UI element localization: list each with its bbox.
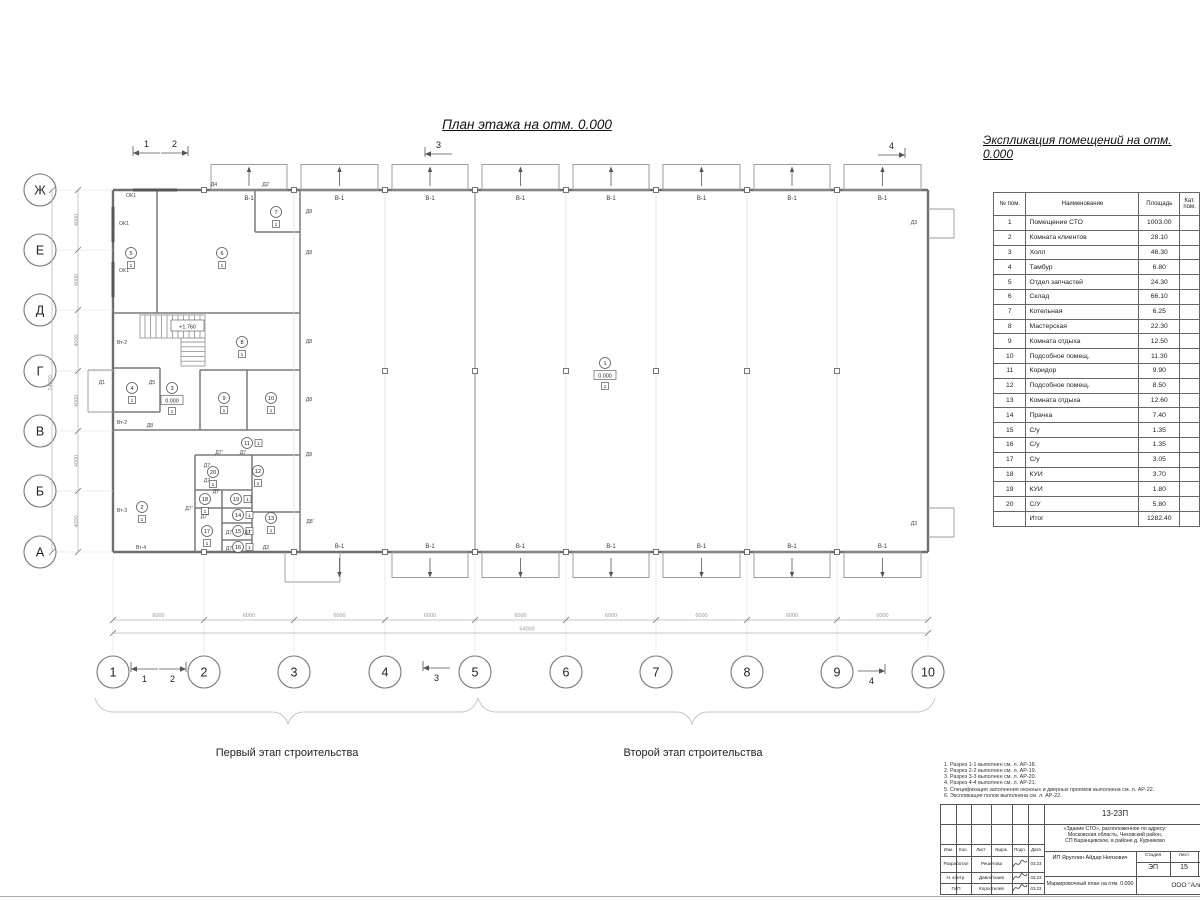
col-header-area: Площадь bbox=[1139, 193, 1180, 216]
gate-label: В-1 bbox=[787, 544, 797, 550]
bay-dimension: 6000 bbox=[424, 613, 436, 619]
section-label: 3 bbox=[436, 140, 441, 150]
bay-dimension: 6000 bbox=[695, 613, 707, 619]
address-line3: СП Баранцевское, в районе д. Курниково bbox=[1044, 838, 1186, 844]
gate-label: В-1 bbox=[335, 544, 345, 550]
table-cell bbox=[1180, 497, 1200, 512]
gate-label: В-1 bbox=[787, 196, 797, 202]
gate-label: В-1 bbox=[516, 196, 526, 202]
section-arrowhead bbox=[899, 152, 905, 158]
table-cell: 13 bbox=[994, 393, 1026, 408]
gate-label: В-1 bbox=[606, 544, 616, 550]
table-cell: Подсобное помещ. bbox=[1026, 349, 1139, 364]
door-label: Д7 bbox=[240, 450, 247, 456]
table-header-row: № пом. Наименование Площадь Кат. пом. bbox=[994, 193, 1200, 216]
table-row: 9Комната отдыха12.50 bbox=[994, 334, 1200, 349]
table-cell: 20 bbox=[994, 497, 1026, 512]
floor-type-number: 1 bbox=[212, 482, 215, 488]
column-mark bbox=[835, 550, 840, 555]
project-address: «Здание СТО», расположенное по адресу: М… bbox=[1044, 826, 1186, 845]
gate-label: В-1 bbox=[697, 544, 707, 550]
section-arrowhead bbox=[180, 666, 186, 672]
column-mark bbox=[202, 550, 207, 555]
header-ndok: №док. bbox=[991, 847, 1012, 852]
bay-dimension: 6000 bbox=[605, 613, 617, 619]
bay-dimension: 6000 bbox=[152, 613, 164, 619]
role-gip: ГИП bbox=[941, 886, 971, 892]
section-label: 2 bbox=[172, 139, 177, 149]
name-developer: Решетова bbox=[971, 861, 1012, 867]
table-cell: 24.30 bbox=[1139, 275, 1180, 290]
window-marks bbox=[113, 190, 177, 297]
room-level: 0.000 bbox=[165, 399, 179, 405]
table-cell bbox=[1180, 245, 1200, 260]
room-number: 10 bbox=[268, 396, 274, 402]
gate-label: В-1 bbox=[244, 196, 254, 202]
row-dimension: 4000 bbox=[74, 334, 80, 346]
signature-developer bbox=[1012, 857, 1028, 870]
table-row: 12Подсобное помещ.8.50 bbox=[994, 378, 1200, 393]
room-number: 3 bbox=[170, 386, 173, 392]
table-row: 20С/У5.80 bbox=[994, 497, 1200, 512]
table-cell: 1.35 bbox=[1139, 423, 1180, 438]
col-axis-label: 4 bbox=[382, 666, 389, 680]
col-header-name: Наименование bbox=[1026, 193, 1139, 216]
table-cell: 28.10 bbox=[1139, 230, 1180, 245]
gate-arrowhead bbox=[790, 167, 794, 173]
door-label: Д4 bbox=[211, 182, 218, 188]
gate-arrowhead bbox=[337, 167, 341, 173]
explication-title: Экспликация помещений на отм. 0.000 bbox=[983, 133, 1195, 161]
porches bbox=[88, 209, 954, 582]
gate-arrowhead bbox=[428, 167, 432, 173]
door-label: Д7 bbox=[226, 546, 233, 552]
stair-level-label: +1.760 bbox=[179, 325, 196, 331]
row-axis-label: Г bbox=[37, 365, 44, 379]
table-cell: С/у bbox=[1026, 423, 1139, 438]
door-label: Д7 bbox=[213, 489, 220, 495]
column-mark bbox=[383, 550, 388, 555]
gate-label: В-1 bbox=[335, 196, 345, 202]
table-row: 4Тамбур6.80 bbox=[994, 260, 1200, 275]
door-label: Д7 bbox=[204, 478, 211, 484]
table-cell: Комната отдыха bbox=[1026, 334, 1139, 349]
room-number: 20 bbox=[210, 470, 216, 476]
room-number: 7 bbox=[274, 210, 277, 216]
room-level: 0.000 bbox=[598, 374, 612, 380]
stage1-brace bbox=[95, 698, 478, 724]
column-mark bbox=[564, 369, 569, 374]
gate-arrowhead bbox=[609, 167, 613, 173]
table-cell: 15 bbox=[994, 423, 1026, 438]
floor-type-number: 1 bbox=[171, 409, 174, 415]
row-dimension: 4000 bbox=[74, 455, 80, 467]
gate-label: В-1 bbox=[878, 544, 888, 550]
door-label: Д7' bbox=[185, 506, 192, 512]
section-label: 4 bbox=[889, 141, 894, 151]
table-cell: 11.30 bbox=[1139, 349, 1180, 364]
table-cell bbox=[994, 511, 1026, 526]
table-cell: С/У bbox=[1026, 497, 1139, 512]
stage-header: Стадия bbox=[1136, 853, 1170, 859]
floor-type-number: 1 bbox=[246, 497, 249, 503]
total-width-dimension: 54000 bbox=[519, 627, 534, 633]
window-label: ОК1 bbox=[126, 193, 136, 199]
table-cell bbox=[1180, 452, 1200, 467]
drawing-name: Маркировочный план на отм. 0.000 bbox=[1044, 881, 1136, 887]
table-cell: 19 bbox=[994, 482, 1026, 497]
vent-label: Вт-2 bbox=[117, 420, 127, 426]
table-cell: 17 bbox=[994, 452, 1026, 467]
table-row: 5Отдел запчастей24.30 bbox=[994, 275, 1200, 290]
door-label: Д7' bbox=[215, 450, 222, 456]
column-mark bbox=[383, 188, 388, 193]
title-block: 13-23П «Здание СТО», расположенное по ад… bbox=[940, 804, 1200, 895]
header-list: Лист bbox=[971, 847, 991, 852]
stage-value: ЭП bbox=[1136, 864, 1170, 872]
table-cell: 3.05 bbox=[1139, 452, 1180, 467]
column-mark bbox=[383, 369, 388, 374]
date-developer: 03.23 bbox=[1028, 861, 1044, 866]
gate-arrowhead bbox=[337, 572, 341, 578]
table-row: 19КУИ1.80 bbox=[994, 482, 1200, 497]
floor-type-number: 1 bbox=[248, 545, 251, 551]
door-label: Д5 bbox=[149, 380, 156, 386]
column-mark bbox=[473, 188, 478, 193]
table-row: 14Прачка7.40 bbox=[994, 408, 1200, 423]
door-label: Д2 bbox=[263, 545, 270, 551]
floor-type-number: 1 bbox=[141, 517, 144, 523]
door-label: Д8 bbox=[147, 423, 154, 429]
gate-arrowhead bbox=[880, 572, 884, 578]
table-row: 6Склад66.10 bbox=[994, 289, 1200, 304]
gate-label: В-1 bbox=[516, 544, 526, 550]
row-axis-label: А bbox=[36, 546, 45, 560]
vent-label: Вт-3 bbox=[117, 508, 127, 514]
table-cell: 22.30 bbox=[1139, 319, 1180, 334]
total-height-dimension: 24000 bbox=[48, 375, 54, 390]
room-number: 18 bbox=[202, 497, 208, 503]
row-dimension: 4000 bbox=[74, 214, 80, 226]
column-mark bbox=[564, 188, 569, 193]
gate-arrowhead bbox=[609, 572, 613, 578]
table-cell: Прачка bbox=[1026, 408, 1139, 423]
table-row: 15С/у1.35 bbox=[994, 423, 1200, 438]
table-row: 2Комната клиентов28.10 bbox=[994, 230, 1200, 245]
section-label: 1 bbox=[144, 139, 149, 149]
stage2-brace bbox=[478, 698, 935, 724]
plan-title: План этажа на отм. 0.000 bbox=[327, 117, 727, 132]
gate-arrowhead bbox=[699, 167, 703, 173]
floor-type-number: 1 bbox=[130, 263, 133, 269]
section-arrowhead bbox=[131, 666, 137, 672]
signature-gip bbox=[1012, 882, 1028, 894]
date-gip: 03.23 bbox=[1028, 886, 1044, 891]
door-label: Д7 bbox=[204, 463, 211, 469]
table-cell: 12.50 bbox=[1139, 334, 1180, 349]
name-ncontrol: Давлетхаев bbox=[971, 875, 1012, 881]
room-number: 12 bbox=[255, 469, 261, 475]
role-developer: Разработал bbox=[941, 861, 971, 867]
table-cell: 6.25 bbox=[1139, 304, 1180, 319]
sheet-frame-line bbox=[0, 896, 1200, 897]
window-label: ОК1 bbox=[119, 268, 129, 274]
table-cell bbox=[1180, 511, 1200, 526]
gate-label: В-1 bbox=[878, 196, 888, 202]
floor-type-number: 1 bbox=[270, 528, 273, 534]
section-arrowhead bbox=[879, 668, 885, 674]
row-axis-label: Е bbox=[36, 244, 44, 258]
table-cell: 16 bbox=[994, 437, 1026, 452]
column-mark bbox=[745, 369, 750, 374]
column-mark bbox=[654, 550, 659, 555]
gate-arrowhead bbox=[699, 572, 703, 578]
col-axis-label: 2 bbox=[201, 666, 208, 680]
header-kol: Кол. bbox=[956, 847, 971, 852]
name-gip: Коростелев bbox=[971, 886, 1012, 892]
table-cell: Итог bbox=[1026, 511, 1139, 526]
room-number: 15 bbox=[235, 529, 241, 535]
floor-type-number: 1 bbox=[257, 481, 260, 487]
room-number: 16 bbox=[235, 545, 241, 551]
table-cell: КУИ bbox=[1026, 482, 1139, 497]
table-cell: 9 bbox=[994, 334, 1026, 349]
row-dimension: 4000 bbox=[74, 395, 80, 407]
table-cell: 18 bbox=[994, 467, 1026, 482]
floor-type-number: 1 bbox=[257, 441, 260, 447]
door-label: Д3 bbox=[911, 521, 918, 527]
column-mark bbox=[745, 188, 750, 193]
table-cell bbox=[1180, 437, 1200, 452]
table-cell bbox=[1180, 393, 1200, 408]
note-line: 6. Экспликация полов выполнена см. л. АР… bbox=[944, 793, 1182, 799]
client-name: ИП Яруллин Айдар Ниязович bbox=[1044, 855, 1136, 862]
table-cell: 46.30 bbox=[1139, 245, 1180, 260]
table-cell: С/у bbox=[1026, 452, 1139, 467]
room-number: 2 bbox=[140, 505, 143, 511]
table-cell bbox=[1180, 363, 1200, 378]
note-line: 5. Спецификация заполнения оконных и две… bbox=[944, 787, 1182, 793]
bay-dimension: 6000 bbox=[333, 613, 345, 619]
stage2-label: Второй этап строительства bbox=[538, 747, 848, 759]
table-cell bbox=[1180, 408, 1200, 423]
table-cell bbox=[1180, 260, 1200, 275]
table-cell: 12 bbox=[994, 378, 1026, 393]
table-cell bbox=[1180, 349, 1200, 364]
date-ncontrol: 03.23 bbox=[1028, 875, 1044, 880]
room-number: 17 bbox=[204, 529, 210, 535]
table-cell bbox=[1180, 275, 1200, 290]
table-cell: Склад bbox=[1026, 289, 1139, 304]
table-cell: Коридор bbox=[1026, 363, 1139, 378]
column-mark bbox=[473, 550, 478, 555]
door-label: Д8 bbox=[306, 250, 313, 256]
row-axis-label: В bbox=[36, 425, 44, 439]
role-ncontrol: Н. контр. bbox=[941, 875, 971, 881]
table-cell: С/у bbox=[1026, 437, 1139, 452]
table-cell: 6.80 bbox=[1139, 260, 1180, 275]
table-cell: Помещение СТО bbox=[1026, 216, 1139, 231]
notes-list: 1. Разрез 1-1 выполнен см. л. АР-18.2. Р… bbox=[944, 762, 1182, 799]
drawing-sheet: +1.760В-1В-1В-1В-1В-1В-1В-1В-1В-1В-1В-1В… bbox=[0, 0, 1200, 900]
door-label: Д7' bbox=[244, 530, 251, 536]
vent-label: Вт-2 bbox=[117, 340, 127, 346]
gate-label: В-1 bbox=[425, 544, 435, 550]
door-label: Д1 bbox=[99, 380, 106, 386]
table-row: 17С/у3.05 bbox=[994, 452, 1200, 467]
col-axis-label: 3 bbox=[291, 666, 298, 680]
table-cell: 11 bbox=[994, 363, 1026, 378]
section-arrowhead bbox=[423, 665, 429, 671]
table-cell: Комната клиентов bbox=[1026, 230, 1139, 245]
col-header-num: № пом. bbox=[994, 193, 1026, 216]
sheet-header: Лист bbox=[1170, 853, 1198, 859]
floor-type-number: 1 bbox=[248, 513, 251, 519]
table-cell bbox=[1180, 216, 1200, 231]
table-cell: 7.40 bbox=[1139, 408, 1180, 423]
table-cell: Котельная bbox=[1026, 304, 1139, 319]
window-label: ОК1 bbox=[119, 221, 129, 227]
table-cell: 1282.40 bbox=[1139, 511, 1180, 526]
table-cell: Комната отдыха bbox=[1026, 393, 1139, 408]
table-cell: 5.80 bbox=[1139, 497, 1180, 512]
column-mark bbox=[292, 188, 297, 193]
header-podp: Подл. bbox=[1012, 847, 1028, 852]
table-cell: 66.10 bbox=[1139, 289, 1180, 304]
column-mark bbox=[654, 188, 659, 193]
row-axis-label: Ж bbox=[34, 184, 46, 198]
table-cell bbox=[1180, 482, 1200, 497]
gate-arrowhead bbox=[518, 167, 522, 173]
room-number: 5 bbox=[129, 251, 132, 257]
table-cell: 2 bbox=[994, 230, 1026, 245]
table-cell: 8.50 bbox=[1139, 378, 1180, 393]
table-cell: 4 bbox=[994, 260, 1026, 275]
column-mark bbox=[745, 550, 750, 555]
section-label: 2 bbox=[170, 674, 175, 684]
section-arrowhead bbox=[425, 151, 431, 157]
row-axis-label: Д bbox=[36, 304, 45, 318]
table-row: 7Котельная6.25 bbox=[994, 304, 1200, 319]
gate-label: В-1 bbox=[697, 196, 707, 202]
col-axis-label: 10 bbox=[921, 666, 935, 680]
vent-label: Вт-4 bbox=[136, 545, 146, 551]
table-cell bbox=[1180, 230, 1200, 245]
table-cell: 3 bbox=[994, 245, 1026, 260]
table-cell: 8 bbox=[994, 319, 1026, 334]
table-row: 18КУИ3.70 bbox=[994, 467, 1200, 482]
row-dimension: 4000 bbox=[74, 274, 80, 286]
section-arrowhead bbox=[133, 150, 139, 156]
table-cell bbox=[1180, 467, 1200, 482]
table-cell bbox=[1180, 334, 1200, 349]
table-cell: Тамбур bbox=[1026, 260, 1139, 275]
table-cell bbox=[1180, 319, 1200, 334]
table-cell: Мастерская bbox=[1026, 319, 1139, 334]
floor-type-number: 1 bbox=[221, 263, 224, 269]
sheet-number: 15 bbox=[1170, 864, 1198, 872]
door-label: Д2' bbox=[262, 182, 269, 188]
stage1-label: Первый этап строительства bbox=[132, 747, 442, 759]
floor-type-number: 1 bbox=[131, 398, 134, 404]
section-label: 1 bbox=[142, 674, 147, 684]
table-row: 3Холл46.30 bbox=[994, 245, 1200, 260]
column-mark bbox=[473, 369, 478, 374]
gate-arrowhead bbox=[790, 572, 794, 578]
door-label: Д8 bbox=[306, 397, 313, 403]
floor-type-number: 1 bbox=[604, 384, 607, 390]
doc-code: 13-23П bbox=[1044, 809, 1186, 819]
table-row: 1Помещение СТО1003.00 bbox=[994, 216, 1200, 231]
table-cell bbox=[1180, 423, 1200, 438]
table-cell: 14 bbox=[994, 408, 1026, 423]
table-cell: 1.35 bbox=[1139, 437, 1180, 452]
bay-dimension: 6000 bbox=[876, 613, 888, 619]
col-axis-label: 6 bbox=[563, 666, 570, 680]
col-axis-label: 5 bbox=[472, 666, 479, 680]
table-cell: Отдел запчастей bbox=[1026, 275, 1139, 290]
room-number: 9 bbox=[222, 396, 225, 402]
room-number: 1 bbox=[603, 361, 606, 367]
gate-label: В-1 bbox=[606, 196, 616, 202]
door-label: Д7 bbox=[226, 530, 233, 536]
column-mark bbox=[654, 369, 659, 374]
column-mark bbox=[202, 188, 207, 193]
col-axis-label: 9 bbox=[834, 666, 841, 680]
room-number: 13 bbox=[268, 516, 274, 522]
header-izm: Изм. bbox=[941, 847, 956, 852]
table-cell: 1.80 bbox=[1139, 482, 1180, 497]
col-axis-label: 8 bbox=[744, 666, 751, 680]
gate-arrowhead bbox=[247, 167, 251, 173]
room-number: 19 bbox=[233, 497, 239, 503]
table-row: 10Подсобное помещ.11.30 bbox=[994, 349, 1200, 364]
column-mark bbox=[835, 188, 840, 193]
table-row: 13Комната отдыха12.60 bbox=[994, 393, 1200, 408]
door-label: Д7'' bbox=[201, 514, 209, 520]
room-schedule-table: № пом. Наименование Площадь Кат. пом. 1П… bbox=[993, 192, 1200, 527]
table-cell bbox=[1180, 378, 1200, 393]
room-number: 11 bbox=[244, 441, 250, 447]
table-cell: 3.70 bbox=[1139, 467, 1180, 482]
table-row: 8Мастерская22.30 bbox=[994, 319, 1200, 334]
door-label: Д8 bbox=[306, 209, 313, 215]
table-cell: 9.90 bbox=[1139, 363, 1180, 378]
header-data: Дата bbox=[1028, 847, 1044, 852]
column-mark bbox=[292, 550, 297, 555]
bay-dimension: 6000 bbox=[514, 613, 526, 619]
col-header-cat: Кат. пом. bbox=[1180, 193, 1200, 216]
gate-arrowhead bbox=[428, 572, 432, 578]
bay-dimension: 6000 bbox=[786, 613, 798, 619]
gate-arrowhead bbox=[518, 572, 522, 578]
table-cell: 1003.00 bbox=[1139, 216, 1180, 231]
room-number: 8 bbox=[240, 340, 243, 346]
floor-type-number: 1 bbox=[270, 408, 273, 414]
col-axis-label: 1 bbox=[110, 666, 117, 680]
floor-type-number: 1 bbox=[223, 408, 226, 414]
table-cell bbox=[1180, 304, 1200, 319]
door-label: Д8 bbox=[306, 452, 313, 458]
company-name: ООО "Алья bbox=[1136, 882, 1200, 890]
table-cell: 12.60 bbox=[1139, 393, 1180, 408]
gate-label: В-1 bbox=[425, 196, 435, 202]
table-cell: 6 bbox=[994, 289, 1026, 304]
section-label: 3 bbox=[434, 673, 439, 683]
table-cell: Подсобное помещ. bbox=[1026, 378, 1139, 393]
section-arrowhead bbox=[182, 150, 188, 156]
table-row: 16С/у1.35 bbox=[994, 437, 1200, 452]
